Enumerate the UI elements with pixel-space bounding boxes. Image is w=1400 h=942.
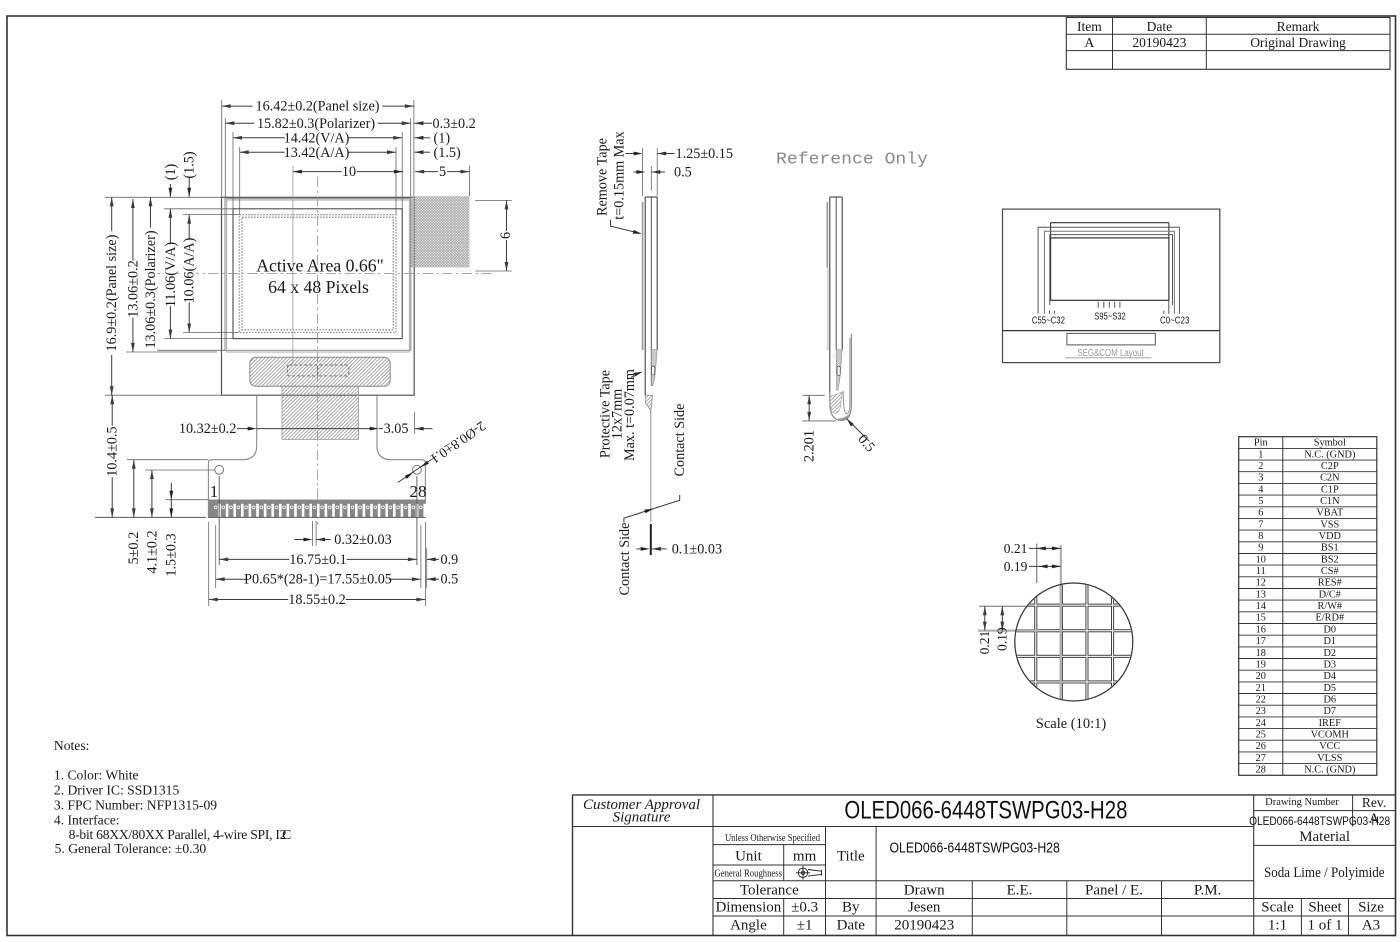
svg-text:C1P: C1P bbox=[1321, 484, 1339, 495]
svg-text:28: 28 bbox=[410, 482, 427, 501]
svg-text:10: 10 bbox=[1256, 554, 1266, 565]
svg-text:11: 11 bbox=[1256, 566, 1266, 577]
svg-text:Notes:: Notes: bbox=[54, 738, 90, 753]
svg-text:N.C. (GND): N.C. (GND) bbox=[1304, 765, 1355, 776]
svg-text:17: 17 bbox=[1256, 636, 1266, 647]
svg-text:0.5: 0.5 bbox=[441, 572, 459, 588]
svg-text:C2N: C2N bbox=[1320, 473, 1340, 484]
svg-text:R/W#: R/W# bbox=[1317, 601, 1342, 612]
svg-text:Date: Date bbox=[837, 918, 866, 934]
svg-text:20190423: 20190423 bbox=[1132, 35, 1186, 50]
svg-text:25: 25 bbox=[1256, 730, 1266, 741]
svg-text:16.75±0.1: 16.75±0.1 bbox=[289, 552, 346, 568]
svg-text:A: A bbox=[1085, 35, 1095, 50]
svg-text:D1: D1 bbox=[1324, 636, 1337, 647]
svg-text:Panel / E.: Panel / E. bbox=[1085, 883, 1143, 899]
svg-text:D6: D6 bbox=[1324, 694, 1337, 705]
svg-text:0.19: 0.19 bbox=[995, 627, 1010, 651]
svg-text:Unless Otherwise Specified: Unless Otherwise Specified bbox=[725, 833, 821, 844]
svg-text:Signature: Signature bbox=[613, 810, 671, 826]
svg-text:Original Drawing: Original Drawing bbox=[1250, 35, 1346, 50]
svg-text:18.55±0.2: 18.55±0.2 bbox=[288, 592, 345, 608]
svg-text:Soda Lime / Polyimide: Soda Lime / Polyimide bbox=[1264, 865, 1385, 881]
svg-text:64 x 48 Pixels: 64 x 48 Pixels bbox=[268, 277, 369, 297]
svg-text:±0.3: ±0.3 bbox=[791, 900, 818, 916]
svg-text:Max. t=0.07mm: Max. t=0.07mm bbox=[622, 369, 638, 461]
svg-text:VCC: VCC bbox=[1319, 741, 1340, 752]
svg-text:Symbol: Symbol bbox=[1314, 438, 1346, 449]
svg-text:0.1±0.03: 0.1±0.03 bbox=[672, 541, 722, 557]
svg-text:1: 1 bbox=[1258, 449, 1263, 460]
svg-text:16.9±0.2(Panel size): 16.9±0.2(Panel size) bbox=[104, 234, 120, 351]
svg-text:±1: ±1 bbox=[797, 918, 813, 934]
svg-text:D5: D5 bbox=[1324, 683, 1337, 694]
svg-text:4. Interface:: 4. Interface: bbox=[54, 812, 120, 827]
svg-text:4: 4 bbox=[1258, 484, 1263, 495]
svg-text:0.5: 0.5 bbox=[674, 165, 692, 181]
svg-text:20: 20 bbox=[1256, 671, 1266, 682]
svg-text:0.21: 0.21 bbox=[1004, 541, 1028, 556]
svg-text:S95~S32: S95~S32 bbox=[1094, 311, 1125, 322]
svg-text:t=0.15mm Max: t=0.15mm Max bbox=[612, 131, 628, 219]
svg-text:Tolerance: Tolerance bbox=[740, 883, 799, 899]
svg-text:Title: Title bbox=[837, 848, 865, 864]
svg-text:2: 2 bbox=[1258, 461, 1263, 472]
svg-text:1. Color: White: 1. Color: White bbox=[54, 767, 139, 782]
svg-text:By: By bbox=[842, 900, 860, 916]
svg-text:15.82±0.3(Polarizer): 15.82±0.3(Polarizer) bbox=[257, 116, 375, 132]
svg-text:(1.5): (1.5) bbox=[182, 151, 198, 178]
svg-text:Date: Date bbox=[1147, 19, 1172, 34]
svg-text:(1.5): (1.5) bbox=[434, 145, 461, 161]
svg-text:IREF: IREF bbox=[1319, 718, 1342, 729]
svg-text:21: 21 bbox=[1256, 683, 1266, 694]
svg-text:Drawing Number: Drawing Number bbox=[1265, 797, 1339, 808]
svg-text:4.1±0.2: 4.1±0.2 bbox=[144, 530, 160, 573]
svg-text:5±0.2: 5±0.2 bbox=[126, 532, 142, 565]
svg-text:Remark: Remark bbox=[1277, 19, 1320, 34]
svg-text:E/RD#: E/RD# bbox=[1315, 613, 1344, 624]
svg-text:OLED066-6448TSWPG03-H28: OLED066-6448TSWPG03-H28 bbox=[890, 840, 1060, 857]
svg-text:8: 8 bbox=[1258, 531, 1263, 542]
svg-text:19: 19 bbox=[1256, 659, 1266, 670]
svg-text:C55~C32: C55~C32 bbox=[1032, 316, 1065, 327]
svg-text:13.06±0.3(Polarizer): 13.06±0.3(Polarizer) bbox=[143, 230, 159, 348]
svg-text:VSS: VSS bbox=[1320, 519, 1339, 530]
svg-text:D0: D0 bbox=[1324, 624, 1337, 635]
svg-text:BS1: BS1 bbox=[1321, 543, 1339, 554]
svg-text:6: 6 bbox=[498, 232, 514, 239]
svg-text:SEG&COM Layout: SEG&COM Layout bbox=[1077, 347, 1143, 359]
svg-text:Remove Tape: Remove Tape bbox=[595, 138, 611, 216]
svg-text:3. FPC Number: NFP1315-09: 3. FPC Number: NFP1315-09 bbox=[54, 797, 217, 812]
svg-text:0.32±0.03: 0.32±0.03 bbox=[334, 532, 391, 548]
svg-text:7: 7 bbox=[1258, 519, 1263, 530]
svg-text:C1N: C1N bbox=[1320, 496, 1340, 507]
svg-text:D2: D2 bbox=[1324, 648, 1337, 659]
svg-text:16: 16 bbox=[1256, 624, 1266, 635]
svg-text:D7: D7 bbox=[1324, 706, 1337, 717]
svg-text:Scale (10:1): Scale (10:1) bbox=[1036, 716, 1107, 732]
svg-text:Scale: Scale bbox=[1261, 900, 1294, 916]
svg-text:C0~C23: C0~C23 bbox=[1160, 316, 1190, 327]
svg-text:2.201: 2.201 bbox=[802, 430, 818, 462]
svg-text:CS#: CS# bbox=[1321, 566, 1339, 577]
svg-text:8-bit 68XX/80XX Parallel, 4-wi: 8-bit 68XX/80XX Parallel, 4-wire SPI, I2… bbox=[69, 827, 291, 842]
svg-text:BS2: BS2 bbox=[1321, 554, 1339, 565]
svg-text:10: 10 bbox=[342, 164, 356, 180]
svg-text:0.9: 0.9 bbox=[441, 552, 459, 568]
svg-text:General Roughness: General Roughness bbox=[715, 869, 783, 880]
svg-text:15: 15 bbox=[1256, 613, 1266, 624]
svg-text:Drawn: Drawn bbox=[904, 883, 945, 899]
svg-text:11.06(V/A): 11.06(V/A) bbox=[163, 242, 179, 308]
svg-text:13.06±0.2: 13.06±0.2 bbox=[125, 260, 141, 317]
svg-text:D4: D4 bbox=[1324, 671, 1337, 682]
svg-text:0.19: 0.19 bbox=[1004, 559, 1028, 574]
svg-text:Size: Size bbox=[1358, 900, 1384, 916]
svg-text:12: 12 bbox=[1256, 578, 1266, 589]
svg-text:27: 27 bbox=[1256, 753, 1266, 764]
svg-text:N.C. (GND): N.C. (GND) bbox=[1304, 449, 1355, 460]
svg-text:5: 5 bbox=[439, 164, 446, 180]
svg-text:Angle: Angle bbox=[730, 918, 767, 934]
svg-text:OLED066-6448TSWPG03-H28: OLED066-6448TSWPG03-H28 bbox=[844, 797, 1127, 825]
svg-text:Pin: Pin bbox=[1254, 438, 1268, 449]
svg-text:10.06(A/A): 10.06(A/A) bbox=[182, 237, 198, 303]
svg-text:D3: D3 bbox=[1324, 659, 1337, 670]
svg-text:1:1: 1:1 bbox=[1268, 918, 1287, 934]
svg-text:1.25±0.15: 1.25±0.15 bbox=[676, 146, 733, 162]
svg-text:RES#: RES# bbox=[1318, 578, 1342, 589]
svg-text:C2P: C2P bbox=[1321, 461, 1339, 472]
svg-text:Dimension: Dimension bbox=[715, 900, 781, 916]
svg-text:18: 18 bbox=[1256, 648, 1266, 659]
svg-text:10.4±0.5: 10.4±0.5 bbox=[105, 426, 121, 476]
svg-text:13.42(A/A): 13.42(A/A) bbox=[284, 145, 350, 161]
svg-text:5. General Tolerance: ±0.30: 5. General Tolerance: ±0.30 bbox=[55, 841, 207, 856]
svg-text:VCOMH: VCOMH bbox=[1311, 730, 1350, 741]
svg-text:VBAT: VBAT bbox=[1316, 508, 1344, 519]
svg-text:22: 22 bbox=[1256, 694, 1266, 705]
svg-text:Sheet: Sheet bbox=[1308, 900, 1342, 916]
svg-text:VDD: VDD bbox=[1319, 531, 1342, 542]
svg-text:2. Driver IC: SSD1315: 2. Driver IC: SSD1315 bbox=[54, 782, 180, 797]
svg-text:0.21: 0.21 bbox=[977, 631, 992, 655]
svg-text:14: 14 bbox=[1256, 601, 1266, 612]
svg-text:Reference Only: Reference Only bbox=[776, 151, 928, 170]
svg-text:P0.65*(28-1)=17.55±0.05: P0.65*(28-1)=17.55±0.05 bbox=[244, 572, 392, 588]
svg-text:mm: mm bbox=[793, 848, 817, 864]
svg-text:Unit: Unit bbox=[735, 848, 763, 864]
svg-text:Jesen: Jesen bbox=[908, 900, 941, 916]
svg-text:20190423: 20190423 bbox=[894, 918, 954, 934]
svg-text:10.32±0.2: 10.32±0.2 bbox=[179, 421, 236, 437]
svg-text:A3: A3 bbox=[1362, 918, 1380, 934]
svg-text:6: 6 bbox=[1258, 508, 1263, 519]
svg-text:26: 26 bbox=[1256, 741, 1266, 752]
svg-text:A: A bbox=[1369, 811, 1380, 826]
svg-text:Contact Side: Contact Side bbox=[672, 404, 688, 477]
svg-text:E.E.: E.E. bbox=[1007, 883, 1033, 899]
svg-text:Active Area 0.66": Active Area 0.66" bbox=[256, 256, 384, 276]
svg-text:P.M.: P.M. bbox=[1194, 883, 1222, 899]
svg-text:0.3±0.2: 0.3±0.2 bbox=[433, 116, 476, 132]
svg-text:13: 13 bbox=[1256, 589, 1266, 600]
svg-text:3.05: 3.05 bbox=[384, 421, 409, 437]
svg-text:9: 9 bbox=[1258, 543, 1263, 554]
svg-text:5: 5 bbox=[1258, 496, 1263, 507]
svg-text:Material: Material bbox=[1299, 829, 1350, 845]
svg-text:Contact Side: Contact Side bbox=[617, 523, 633, 596]
svg-text:16.42±0.2(Panel size): 16.42±0.2(Panel size) bbox=[255, 99, 379, 115]
svg-text:1: 1 bbox=[210, 482, 219, 501]
svg-text:1 of 1: 1 of 1 bbox=[1308, 918, 1343, 934]
svg-text:D/C#: D/C# bbox=[1319, 589, 1341, 600]
svg-text:24: 24 bbox=[1256, 718, 1266, 729]
svg-text:(1): (1) bbox=[163, 163, 179, 180]
svg-text:Item: Item bbox=[1077, 19, 1102, 34]
svg-text:3: 3 bbox=[1258, 473, 1263, 484]
svg-text:Rev.: Rev. bbox=[1362, 795, 1386, 810]
svg-text:28: 28 bbox=[1256, 765, 1266, 776]
svg-text:23: 23 bbox=[1256, 706, 1266, 717]
svg-text:VLSS: VLSS bbox=[1317, 753, 1342, 764]
svg-text:1.5±0.3: 1.5±0.3 bbox=[164, 533, 180, 576]
